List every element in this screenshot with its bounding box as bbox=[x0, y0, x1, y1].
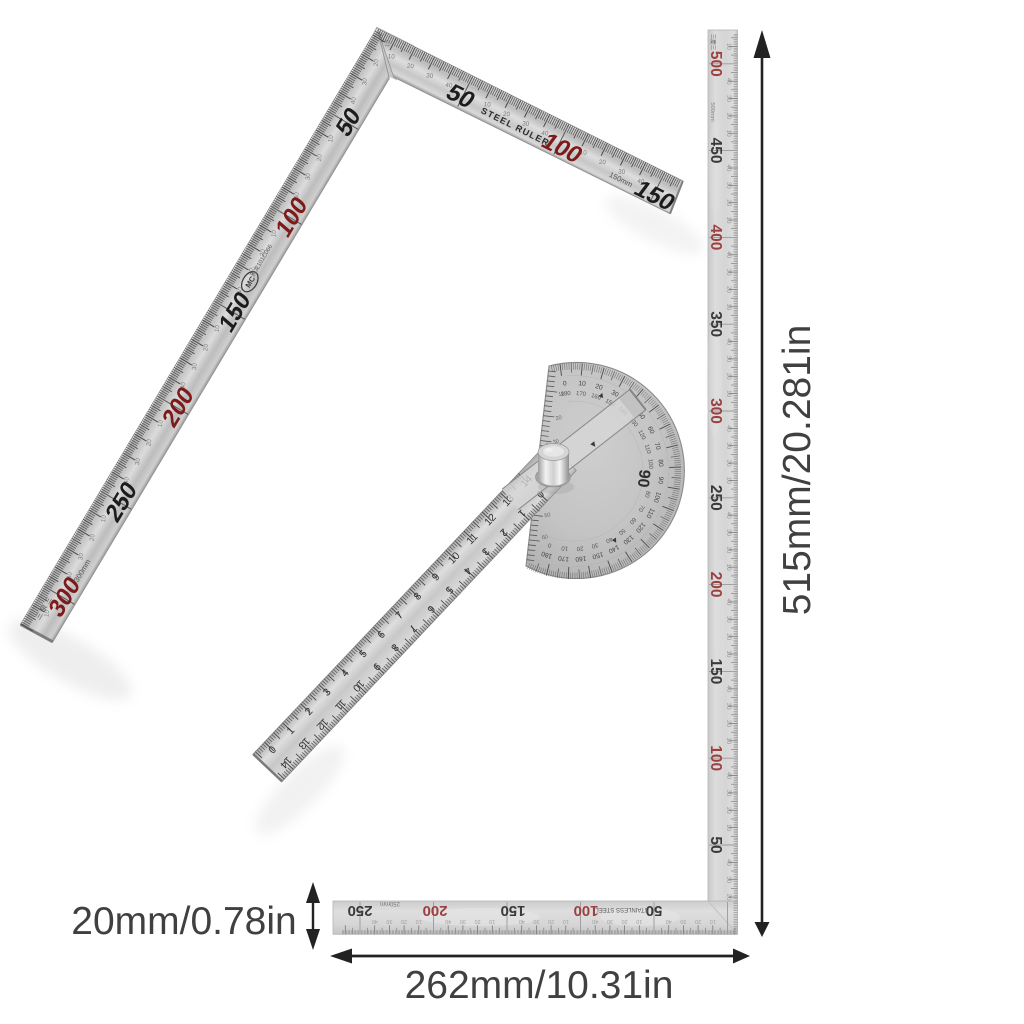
svg-text:20: 20 bbox=[725, 807, 732, 814]
svg-text:160: 160 bbox=[575, 554, 587, 562]
svg-text:40: 40 bbox=[725, 512, 732, 519]
svg-text:20mm/0.78in: 20mm/0.78in bbox=[71, 900, 296, 943]
svg-text:20: 20 bbox=[622, 918, 628, 924]
svg-text:40: 40 bbox=[725, 685, 732, 692]
svg-text:80: 80 bbox=[656, 459, 664, 467]
svg-text:10: 10 bbox=[725, 564, 732, 571]
svg-text:30: 30 bbox=[725, 269, 732, 276]
svg-text:10: 10 bbox=[725, 130, 732, 137]
svg-text:10: 10 bbox=[563, 918, 569, 924]
svg-text:30: 30 bbox=[725, 182, 732, 189]
svg-text:20: 20 bbox=[695, 918, 701, 924]
svg-text:30: 30 bbox=[426, 72, 434, 80]
svg-text:200: 200 bbox=[422, 902, 447, 919]
svg-text:30: 30 bbox=[386, 918, 392, 924]
svg-text:450: 450 bbox=[707, 138, 724, 164]
svg-text:20: 20 bbox=[401, 918, 407, 924]
svg-text:250: 250 bbox=[347, 902, 372, 919]
svg-text:180: 180 bbox=[561, 391, 572, 398]
svg-text:20: 20 bbox=[548, 918, 554, 924]
svg-text:40: 40 bbox=[725, 251, 732, 258]
svg-text:40: 40 bbox=[725, 78, 732, 85]
svg-text:100: 100 bbox=[707, 745, 724, 771]
svg-text:30: 30 bbox=[725, 355, 732, 362]
svg-text:250: 250 bbox=[707, 485, 724, 511]
svg-text:30: 30 bbox=[725, 789, 732, 796]
svg-text:20: 20 bbox=[725, 633, 732, 640]
svg-text:515mm/20.281in: 515mm/20.281in bbox=[776, 325, 819, 616]
svg-text:20: 20 bbox=[475, 918, 481, 924]
svg-text:100: 100 bbox=[646, 459, 653, 470]
svg-text:10: 10 bbox=[725, 217, 732, 224]
svg-text:10: 10 bbox=[636, 918, 642, 924]
svg-text:40: 40 bbox=[725, 425, 732, 432]
svg-text:30: 30 bbox=[725, 703, 732, 710]
svg-text:100: 100 bbox=[573, 902, 598, 919]
svg-text:20: 20 bbox=[599, 159, 607, 167]
svg-text:10: 10 bbox=[387, 53, 395, 61]
svg-text:40: 40 bbox=[725, 859, 732, 866]
svg-text:30: 30 bbox=[725, 442, 732, 449]
svg-text:170: 170 bbox=[557, 554, 569, 562]
svg-text:20: 20 bbox=[725, 460, 732, 467]
svg-text:50: 50 bbox=[544, 512, 551, 519]
svg-text:10: 10 bbox=[725, 824, 732, 831]
svg-text:20: 20 bbox=[725, 199, 732, 206]
svg-text:350: 350 bbox=[707, 311, 724, 337]
svg-text:40: 40 bbox=[725, 599, 732, 606]
svg-text:30: 30 bbox=[725, 616, 732, 623]
svg-text:400: 400 bbox=[707, 224, 724, 250]
svg-text:40: 40 bbox=[725, 338, 732, 345]
svg-text:150: 150 bbox=[707, 658, 724, 684]
svg-text:10: 10 bbox=[725, 303, 732, 310]
svg-text:30: 30 bbox=[607, 918, 613, 924]
svg-text:20: 20 bbox=[725, 373, 732, 380]
svg-text:30: 30 bbox=[533, 918, 539, 924]
svg-text:200: 200 bbox=[707, 572, 724, 598]
svg-text:10: 10 bbox=[578, 380, 586, 388]
svg-text:20: 20 bbox=[725, 720, 732, 727]
svg-text:20: 20 bbox=[576, 545, 584, 552]
svg-text:150: 150 bbox=[500, 902, 525, 919]
svg-text:30: 30 bbox=[725, 876, 732, 883]
svg-text:10: 10 bbox=[725, 477, 732, 484]
svg-text:20: 20 bbox=[725, 546, 732, 553]
svg-text:10: 10 bbox=[725, 651, 732, 658]
svg-text:50: 50 bbox=[707, 836, 724, 853]
svg-text:30: 30 bbox=[460, 918, 466, 924]
svg-text:90: 90 bbox=[656, 476, 664, 484]
svg-text:20: 20 bbox=[725, 112, 732, 119]
svg-text:90: 90 bbox=[634, 469, 653, 489]
svg-text:10: 10 bbox=[725, 737, 732, 744]
svg-text:30: 30 bbox=[725, 529, 732, 536]
svg-text:10: 10 bbox=[710, 918, 716, 924]
svg-text:STAINLESS STEEL: STAINLESS STEEL bbox=[595, 906, 649, 912]
svg-text:10: 10 bbox=[725, 390, 732, 397]
svg-text:40: 40 bbox=[666, 918, 672, 924]
svg-text:20: 20 bbox=[725, 894, 732, 901]
svg-text:20: 20 bbox=[725, 286, 732, 293]
svg-text:30: 30 bbox=[725, 95, 732, 102]
svg-text:250mm: 250mm bbox=[380, 900, 400, 906]
svg-text:262mm/10.31in: 262mm/10.31in bbox=[405, 964, 674, 1007]
svg-text:300: 300 bbox=[707, 398, 724, 424]
svg-text:10: 10 bbox=[725, 43, 732, 50]
svg-text:170: 170 bbox=[576, 391, 587, 398]
svg-text:40: 40 bbox=[725, 165, 732, 172]
svg-text:30: 30 bbox=[680, 918, 686, 924]
svg-text:500: 500 bbox=[707, 51, 724, 77]
svg-text:40: 40 bbox=[725, 772, 732, 779]
svg-text:20: 20 bbox=[407, 63, 415, 71]
svg-text:10: 10 bbox=[489, 918, 495, 924]
svg-text:20: 20 bbox=[555, 415, 562, 422]
svg-text:500mm: 500mm bbox=[709, 102, 715, 122]
svg-text:三慶三: 三慶三 bbox=[709, 34, 717, 51]
svg-text:10: 10 bbox=[416, 918, 422, 924]
